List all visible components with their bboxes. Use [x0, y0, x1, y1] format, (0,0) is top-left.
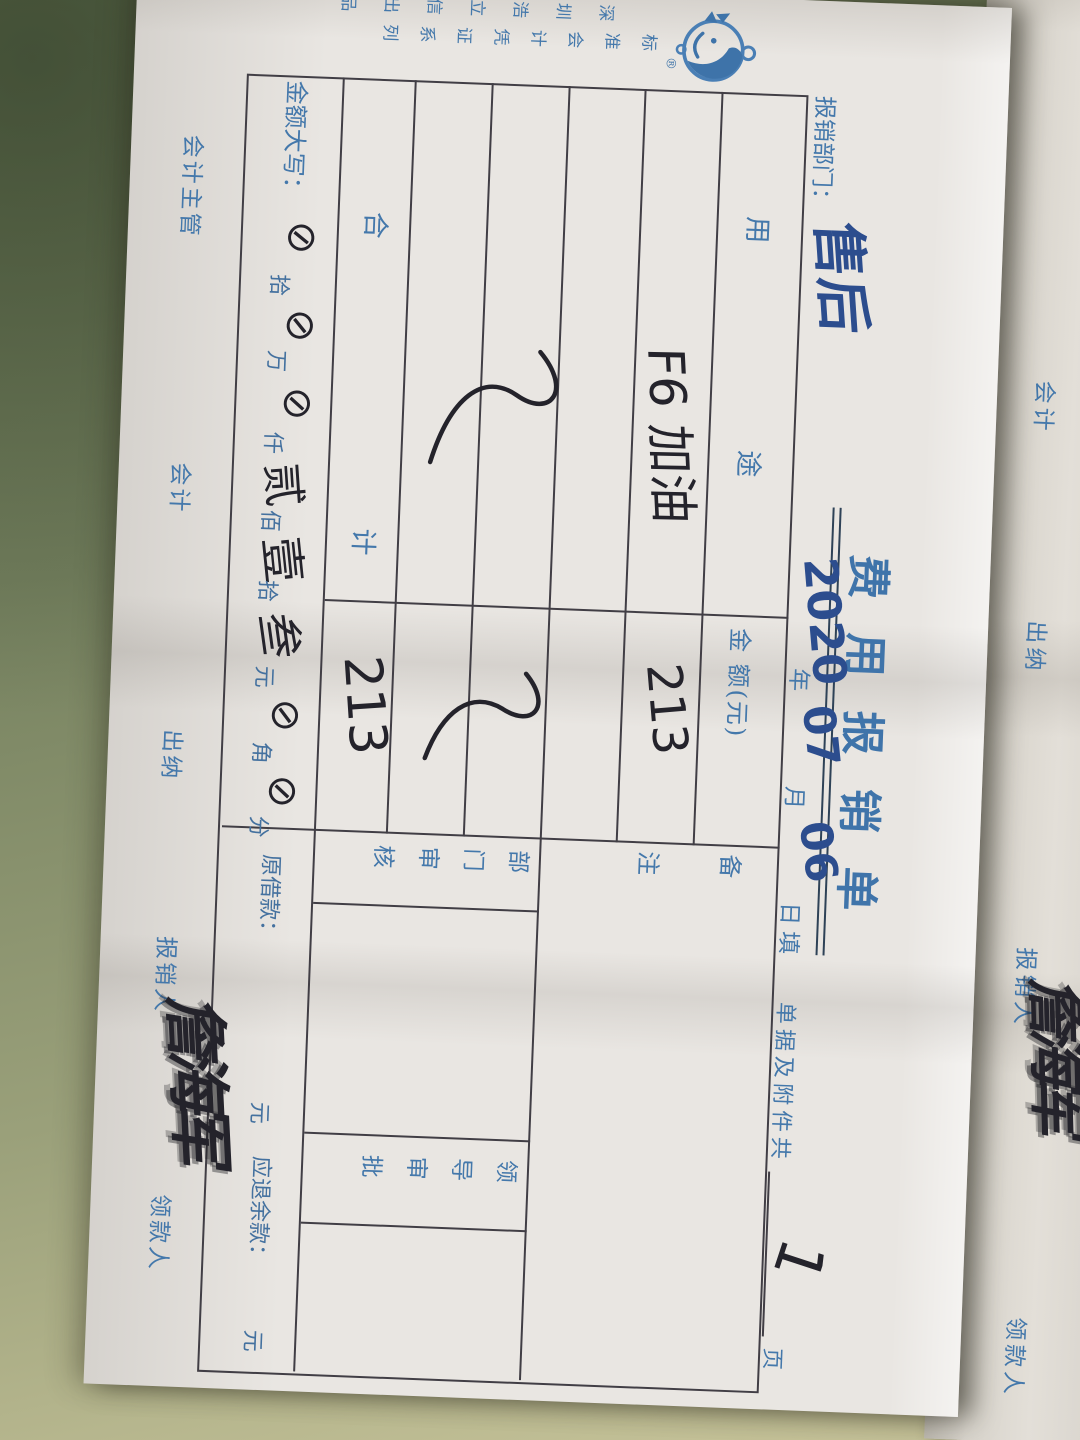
- total-label-char2: 计: [346, 528, 386, 556]
- claimant-signature-handwritten: 詹海军: [152, 992, 253, 1169]
- header-remark: 备注: [552, 840, 743, 882]
- amount-words-unit-qian: 仟: [258, 431, 291, 454]
- date-day-handwritten: 06: [789, 818, 848, 886]
- header-amount: 金 额(元): [721, 627, 760, 739]
- amount-words-unit-shi1: 拾: [264, 274, 297, 297]
- amount-words-unit-wan: 万: [261, 349, 294, 372]
- haolixin-baby-logo: [669, 7, 764, 94]
- refund-unit: 元: [238, 1329, 271, 1352]
- total-amount-handwritten: 213: [332, 654, 398, 757]
- sheet2-label-cashier: 出纳: [1020, 620, 1056, 675]
- amount-words-unit-fen: 分: [244, 815, 277, 838]
- total-label-char1: 合: [358, 211, 398, 239]
- department-value-handwritten: 售后: [801, 220, 890, 335]
- amount-words-digit-2: ⊘: [273, 386, 321, 422]
- header-purpose-char1: 用: [740, 216, 780, 244]
- attachment-count-unit: 页: [758, 1347, 791, 1370]
- signer-cashier: 出纳: [156, 729, 192, 782]
- amount-words-digit-0: ⊘: [277, 219, 326, 257]
- refund-label: 应退余款：: [243, 1155, 279, 1266]
- registered-mark: ®: [662, 57, 677, 71]
- amount-words-digit-4: 壹: [250, 533, 320, 585]
- date-month-handwritten: 07: [792, 703, 849, 769]
- amount-words-unit-yuan: 元: [249, 665, 282, 688]
- signer-accountant: 会计: [164, 462, 200, 515]
- row1-amount-handwritten: 213: [635, 661, 698, 757]
- date-day-unit: 日填: [773, 902, 809, 961]
- amount-words-digit-6: ⊘: [260, 696, 310, 736]
- row1-purpose-handwritten: F6 加油: [633, 347, 714, 525]
- purpose-strike-squiggle: [415, 334, 571, 490]
- expense-form-sheet: ® 标准会计凭证系列 深圳浩立信出品 费用报销单 报销部门： 售后 2020 年…: [84, 0, 1012, 1417]
- date-year-unit: 年: [784, 668, 819, 692]
- attachment-count-handwritten: 1: [758, 1230, 840, 1290]
- signer-payee: 领款人: [143, 1194, 180, 1273]
- amount-strike-squiggle: [411, 658, 550, 773]
- photo-of-expense-form: 会计 出纳 报销人 詹海军 领款人 ® 标准会计凭证系列 深圳浩立信出品 费用报…: [0, 0, 1080, 1440]
- signer-chief-accountant: 会计主管: [175, 134, 213, 239]
- amount-words-label: 金额大写：: [277, 80, 317, 201]
- amount-words-digit-5: 叁: [246, 613, 319, 659]
- department-label: 报销部门：: [806, 95, 844, 211]
- sheet2-label-payee: 领款人: [998, 1317, 1036, 1399]
- sheet2-label-accountant: 会计: [1028, 380, 1064, 435]
- header-purpose-char2: 途: [731, 450, 771, 478]
- date-month-unit: 月: [779, 786, 814, 810]
- amount-words-unit-jiao: 角: [246, 741, 279, 764]
- amount-words-digit-1: ⊘: [276, 307, 325, 345]
- amount-words-unit-shi2: 拾: [253, 579, 286, 602]
- loan-label: 原借款：: [254, 854, 289, 943]
- amount-words-digit-3: 贰: [254, 460, 321, 508]
- sheet2-signature: 詹海军: [1016, 974, 1080, 1140]
- amount-words-digit-7: ⊘: [259, 774, 306, 809]
- amount-words-unit-bai: 佰: [255, 509, 288, 532]
